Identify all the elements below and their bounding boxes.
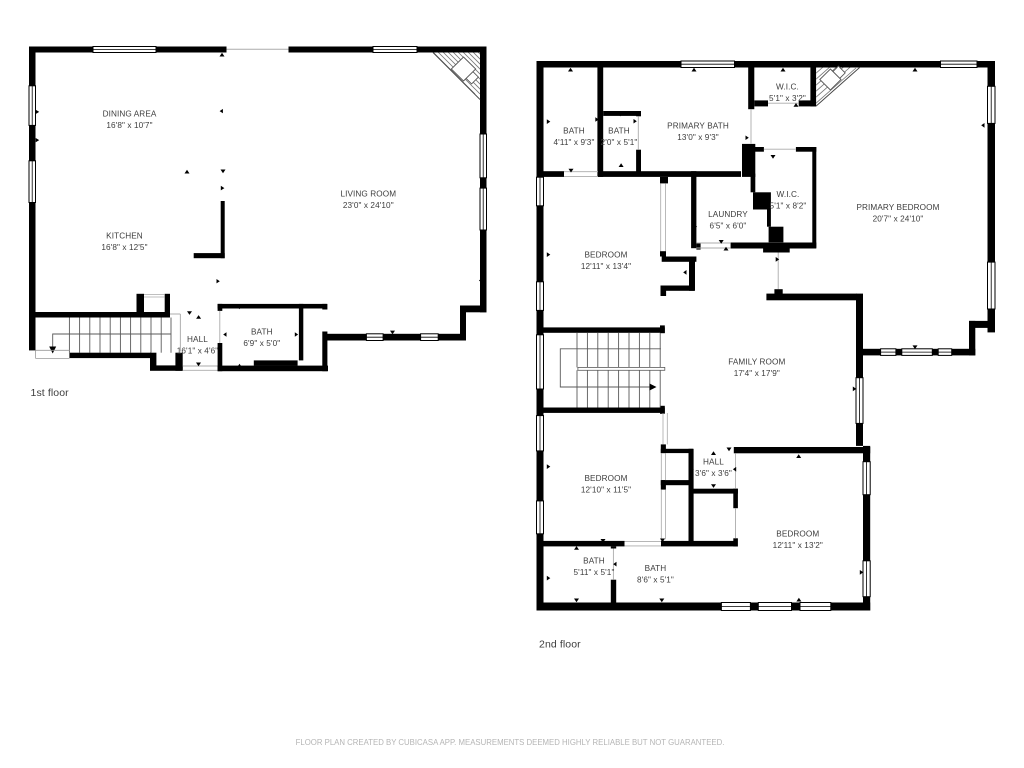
svg-text:BATH: BATH bbox=[583, 557, 605, 566]
svg-text:BEDROOM: BEDROOM bbox=[584, 474, 627, 483]
svg-text:PRIMARY BATH: PRIMARY BATH bbox=[667, 122, 729, 131]
svg-text:LIVING ROOM: LIVING ROOM bbox=[340, 189, 396, 198]
svg-text:6'9" x 5'0": 6'9" x 5'0" bbox=[243, 339, 280, 348]
svg-text:12'11" x 13'2": 12'11" x 13'2" bbox=[773, 541, 823, 550]
svg-text:20'7" x 24'10": 20'7" x 24'10" bbox=[873, 214, 924, 223]
svg-text:16'1" x 4'6": 16'1" x 4'6" bbox=[177, 347, 219, 356]
svg-text:5'1" x 8'2": 5'1" x 8'2" bbox=[770, 201, 807, 210]
svg-text:BATH: BATH bbox=[645, 564, 667, 573]
svg-text:W.I.C.: W.I.C. bbox=[776, 82, 799, 91]
svg-text:16'8" x 10'7": 16'8" x 10'7" bbox=[106, 121, 152, 130]
svg-text:HALL: HALL bbox=[703, 457, 724, 466]
svg-text:3'6" x 3'6": 3'6" x 3'6" bbox=[695, 469, 732, 478]
svg-text:6'5" x 6'0": 6'5" x 6'0" bbox=[710, 222, 747, 231]
svg-text:PRIMARY BEDROOM: PRIMARY BEDROOM bbox=[856, 203, 939, 212]
svg-text:2'0" x 5'1": 2'0" x 5'1" bbox=[601, 138, 638, 147]
svg-text:DINING AREA: DINING AREA bbox=[103, 109, 157, 118]
svg-text:8'6" x 5'1": 8'6" x 5'1" bbox=[637, 575, 674, 584]
svg-text:5'1" x 3'2": 5'1" x 3'2" bbox=[769, 94, 806, 103]
svg-text:FAMILY ROOM: FAMILY ROOM bbox=[728, 358, 785, 367]
svg-text:2nd floor: 2nd floor bbox=[539, 639, 581, 651]
svg-text:12'10" x 11'5": 12'10" x 11'5" bbox=[581, 485, 631, 494]
svg-text:17'4" x 17'9": 17'4" x 17'9" bbox=[734, 369, 780, 378]
svg-text:LAUNDRY: LAUNDRY bbox=[708, 210, 748, 219]
svg-text:23'0" x 24'10": 23'0" x 24'10" bbox=[343, 201, 394, 210]
svg-text:BEDROOM: BEDROOM bbox=[584, 251, 627, 260]
svg-text:13'0" x 9'3": 13'0" x 9'3" bbox=[677, 133, 719, 142]
svg-text:BATH: BATH bbox=[608, 126, 630, 135]
svg-text:BATH: BATH bbox=[563, 126, 585, 135]
svg-text:HALL: HALL bbox=[187, 335, 208, 344]
svg-text:KITCHEN: KITCHEN bbox=[106, 232, 143, 241]
svg-text:BATH: BATH bbox=[251, 328, 273, 337]
svg-text:4'11" x 9'3": 4'11" x 9'3" bbox=[554, 138, 595, 147]
svg-text:W.I.C.: W.I.C. bbox=[777, 190, 800, 199]
svg-text:5'11" x 5'1": 5'11" x 5'1" bbox=[574, 568, 615, 577]
svg-text:1st floor: 1st floor bbox=[31, 387, 70, 399]
svg-text:16'8" x 12'5": 16'8" x 12'5" bbox=[101, 243, 147, 252]
svg-text:12'11" x 13'4": 12'11" x 13'4" bbox=[581, 262, 631, 271]
svg-text:FLOOR PLAN CREATED BY CUBICASA: FLOOR PLAN CREATED BY CUBICASA APP. MEAS… bbox=[296, 738, 725, 747]
svg-text:BEDROOM: BEDROOM bbox=[776, 530, 819, 539]
